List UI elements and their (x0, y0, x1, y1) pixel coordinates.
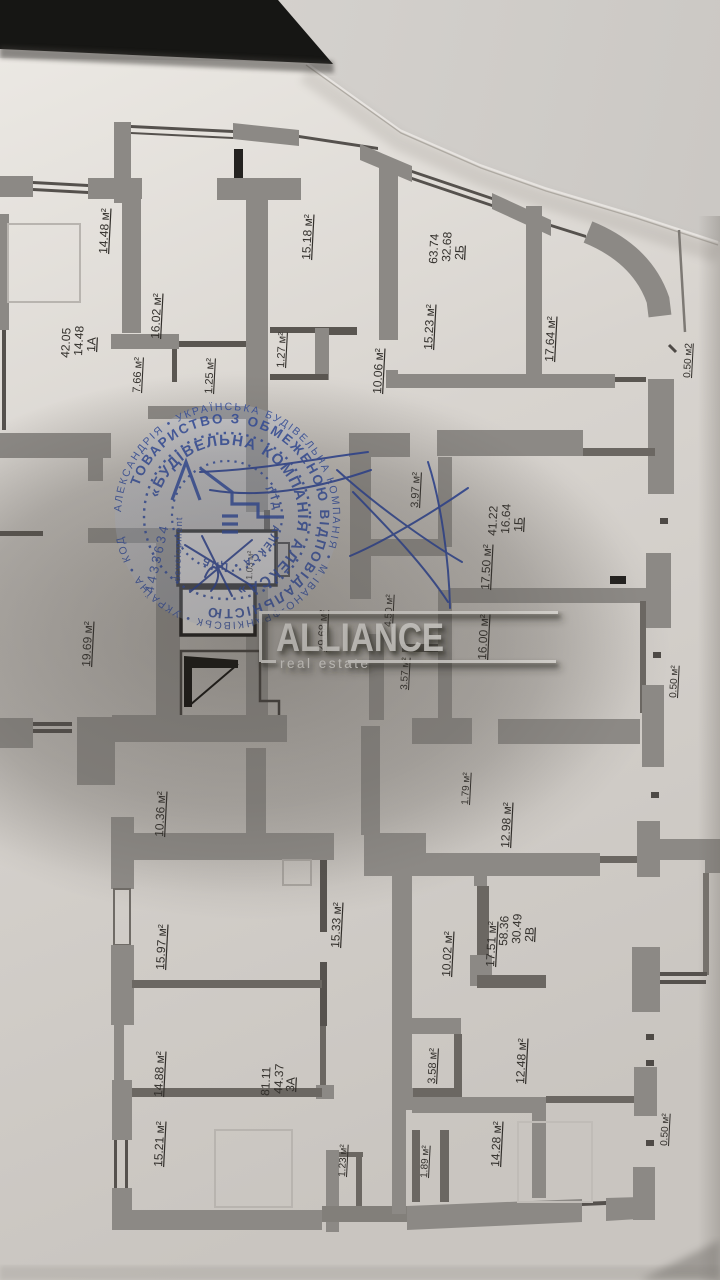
svg-text:1.27 м²: 1.27 м² (275, 332, 289, 369)
svg-text:12.48 м²: 12.48 м² (513, 1038, 529, 1084)
svg-text:15.21 м²: 15.21 м² (151, 1121, 167, 1167)
svg-text:17.64 м²: 17.64 м² (542, 316, 558, 362)
svg-text:17.51 м²: 17.51 м² (483, 921, 499, 967)
svg-text:10.06 м²: 10.06 м² (370, 348, 386, 394)
svg-text:1.23 м²: 1.23 м² (337, 1144, 350, 1178)
svg-text:14.88 м²: 14.88 м² (151, 1051, 167, 1097)
svg-text:14.28 м²: 14.28 м² (488, 1121, 504, 1167)
svg-text:15.23 м²: 15.23 м² (421, 304, 437, 350)
svg-text:16.02 м²: 16.02 м² (148, 293, 164, 339)
svg-text:3.58 м²: 3.58 м² (426, 1048, 440, 1085)
svg-text:10.02 м²: 10.02 м² (439, 931, 455, 977)
svg-text:42.05: 42.05 (58, 327, 74, 358)
svg-text:2Б: 2Б (452, 245, 467, 260)
svg-text:1.89 м²: 1.89 м² (419, 1145, 432, 1179)
svg-text:14.48 м²: 14.48 м² (96, 208, 112, 254)
svg-text:81.11: 81.11 (258, 1066, 274, 1096)
svg-text:15.97 м²: 15.97 м² (153, 924, 169, 970)
svg-text:63.74: 63.74 (426, 233, 442, 264)
svg-text:15.33 м²: 15.33 м² (328, 902, 344, 948)
svg-text:0.50 м²: 0.50 м² (668, 665, 681, 699)
svg-text:0.50 м2: 0.50 м2 (682, 343, 695, 379)
svg-text:2В: 2В (522, 927, 537, 942)
svg-text:0.50 м²: 0.50 м² (659, 1113, 672, 1147)
svg-text:1А: 1А (84, 337, 99, 352)
svg-text:15.18 м²: 15.18 м² (299, 214, 315, 260)
